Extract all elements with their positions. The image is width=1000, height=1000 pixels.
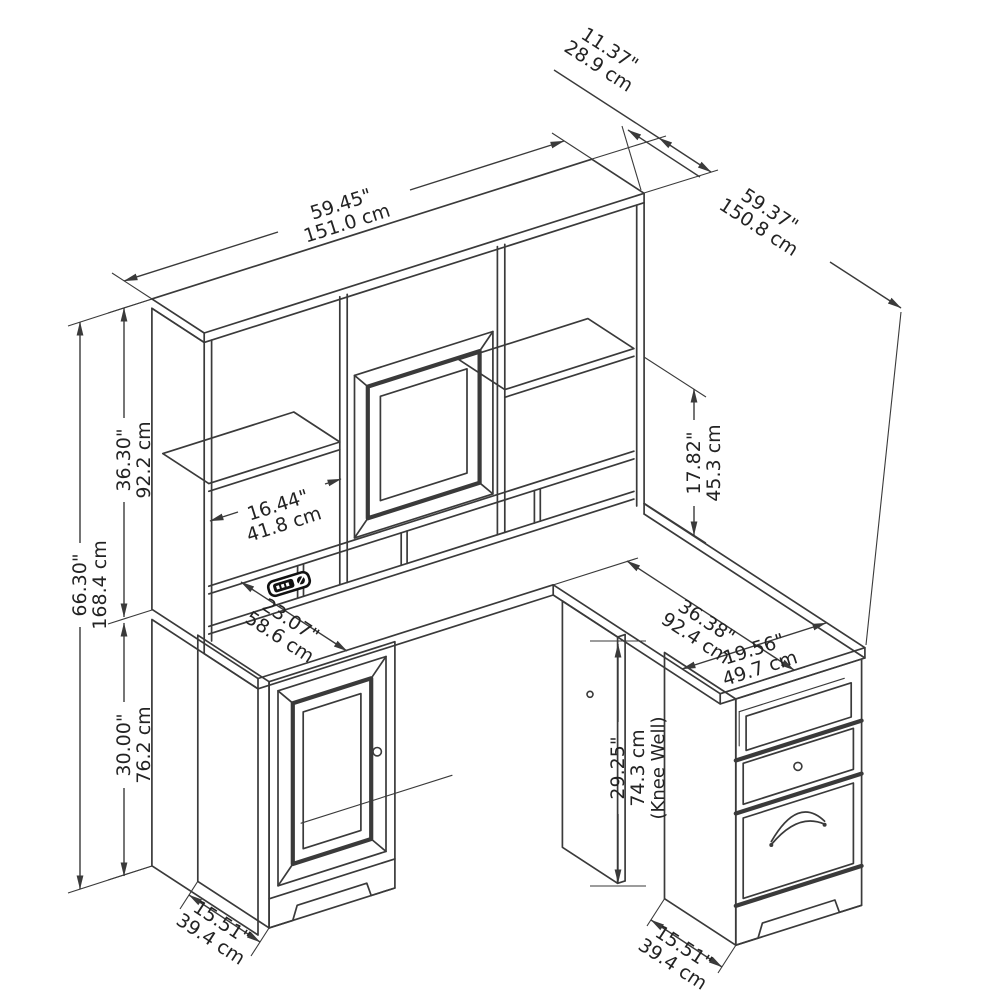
extension-line [108,299,152,313]
svg-text:36.30": 36.30" [113,428,135,491]
svg-text:66.30": 66.30" [69,553,91,616]
svg-text:92.2 cm: 92.2 cm [133,421,155,498]
desk-edge [303,694,361,849]
desk-edge [269,883,395,928]
handle-screw-icon [823,823,827,827]
dimension-line [124,232,278,281]
knob-icon [373,748,381,756]
dimension-line [410,141,564,190]
desk-edge [380,369,467,501]
dimension-line [325,479,341,484]
desk-edge [269,859,395,899]
desk-dimension-diagram: 11.37" 28.9 cm 59.45" 151.0 cm 59.37" 15… [0,0,1000,1000]
handle-screw-icon [769,843,773,847]
desk-edge [459,319,634,390]
svg-text:168.4 cm: 168.4 cm [89,540,111,629]
desk-edge [293,678,371,864]
desk-edge [301,775,452,823]
desk-edge [736,900,862,945]
desk-edge [209,450,340,492]
svg-text:30.00": 30.00" [113,713,135,776]
svg-text:29.25": 29.25" [607,736,629,799]
svg-text:74.3 cm: 74.3 cm [627,729,649,806]
desk-edge [736,721,862,761]
dim-cabinet-depth: 15.51" 39.4 cm [172,892,260,969]
extension-line [552,133,592,159]
desk-edge [665,653,736,946]
extension-line [108,610,152,624]
dim-overall-height: 66.30" 168.4 cm [69,540,111,629]
desk-edge [771,812,824,842]
desk-edge [618,881,626,883]
knob-icon [587,691,593,697]
dim-knee-well-height: 29.25" 74.3 cm (Knee Well) [607,717,669,820]
svg-text:17.82": 17.82" [683,431,705,494]
dim-hutch-height: 36.30" 92.2 cm [113,421,155,498]
extension-line [644,503,706,543]
dim-desk-height: 30.00" 76.2 cm [113,706,155,783]
extension-line [112,273,152,299]
dim-return-length: 59.37" 150.8 cm [715,177,813,261]
dim-hutch-opening-height: 17.82" 45.3 cm [683,424,725,501]
desk-edge [278,691,293,703]
desk-edge [152,159,644,333]
desk-edge [743,783,853,898]
desk-edge [355,375,368,386]
desk-line-art [152,159,865,945]
desk-edge [371,839,386,851]
dim-hutch-depth: 11.37" 28.9 cm [560,19,648,96]
extension-line [108,866,152,880]
desk-edge [152,308,204,342]
extension-line [718,945,736,973]
extension-line [553,558,638,585]
desk-edge [736,659,862,945]
desk-edge [368,351,480,518]
extension-line [644,170,718,193]
dim-pedestal-depth: 15.51" 39.4 cm [634,917,722,994]
power-grommet-icon [267,571,312,598]
desk-edge [163,412,340,484]
knob-icon [794,762,802,770]
desk-edge [736,774,862,814]
svg-text:45.3 cm: 45.3 cm [703,424,725,501]
dimension-line [830,262,901,308]
extension-line [644,357,706,397]
dim-hutch-opening-width: 16.44" 41.8 cm [238,483,324,546]
desk-edge [269,642,395,928]
desk-edge [736,866,862,906]
desk-edge [771,821,824,845]
dimension-line [210,512,238,521]
desk-edge [355,332,493,538]
desk-edge [480,483,493,494]
desk-edge [152,620,258,936]
extension-line [866,312,901,645]
desk-edge [505,356,634,397]
svg-text:76.2 cm: 76.2 cm [133,706,155,783]
svg-text:(Knee Well): (Knee Well) [648,717,669,820]
diagram-canvas: 11.37" 28.9 cm 59.45" 151.0 cm 59.37" 15… [0,0,1000,1000]
desk-edge [618,635,626,637]
